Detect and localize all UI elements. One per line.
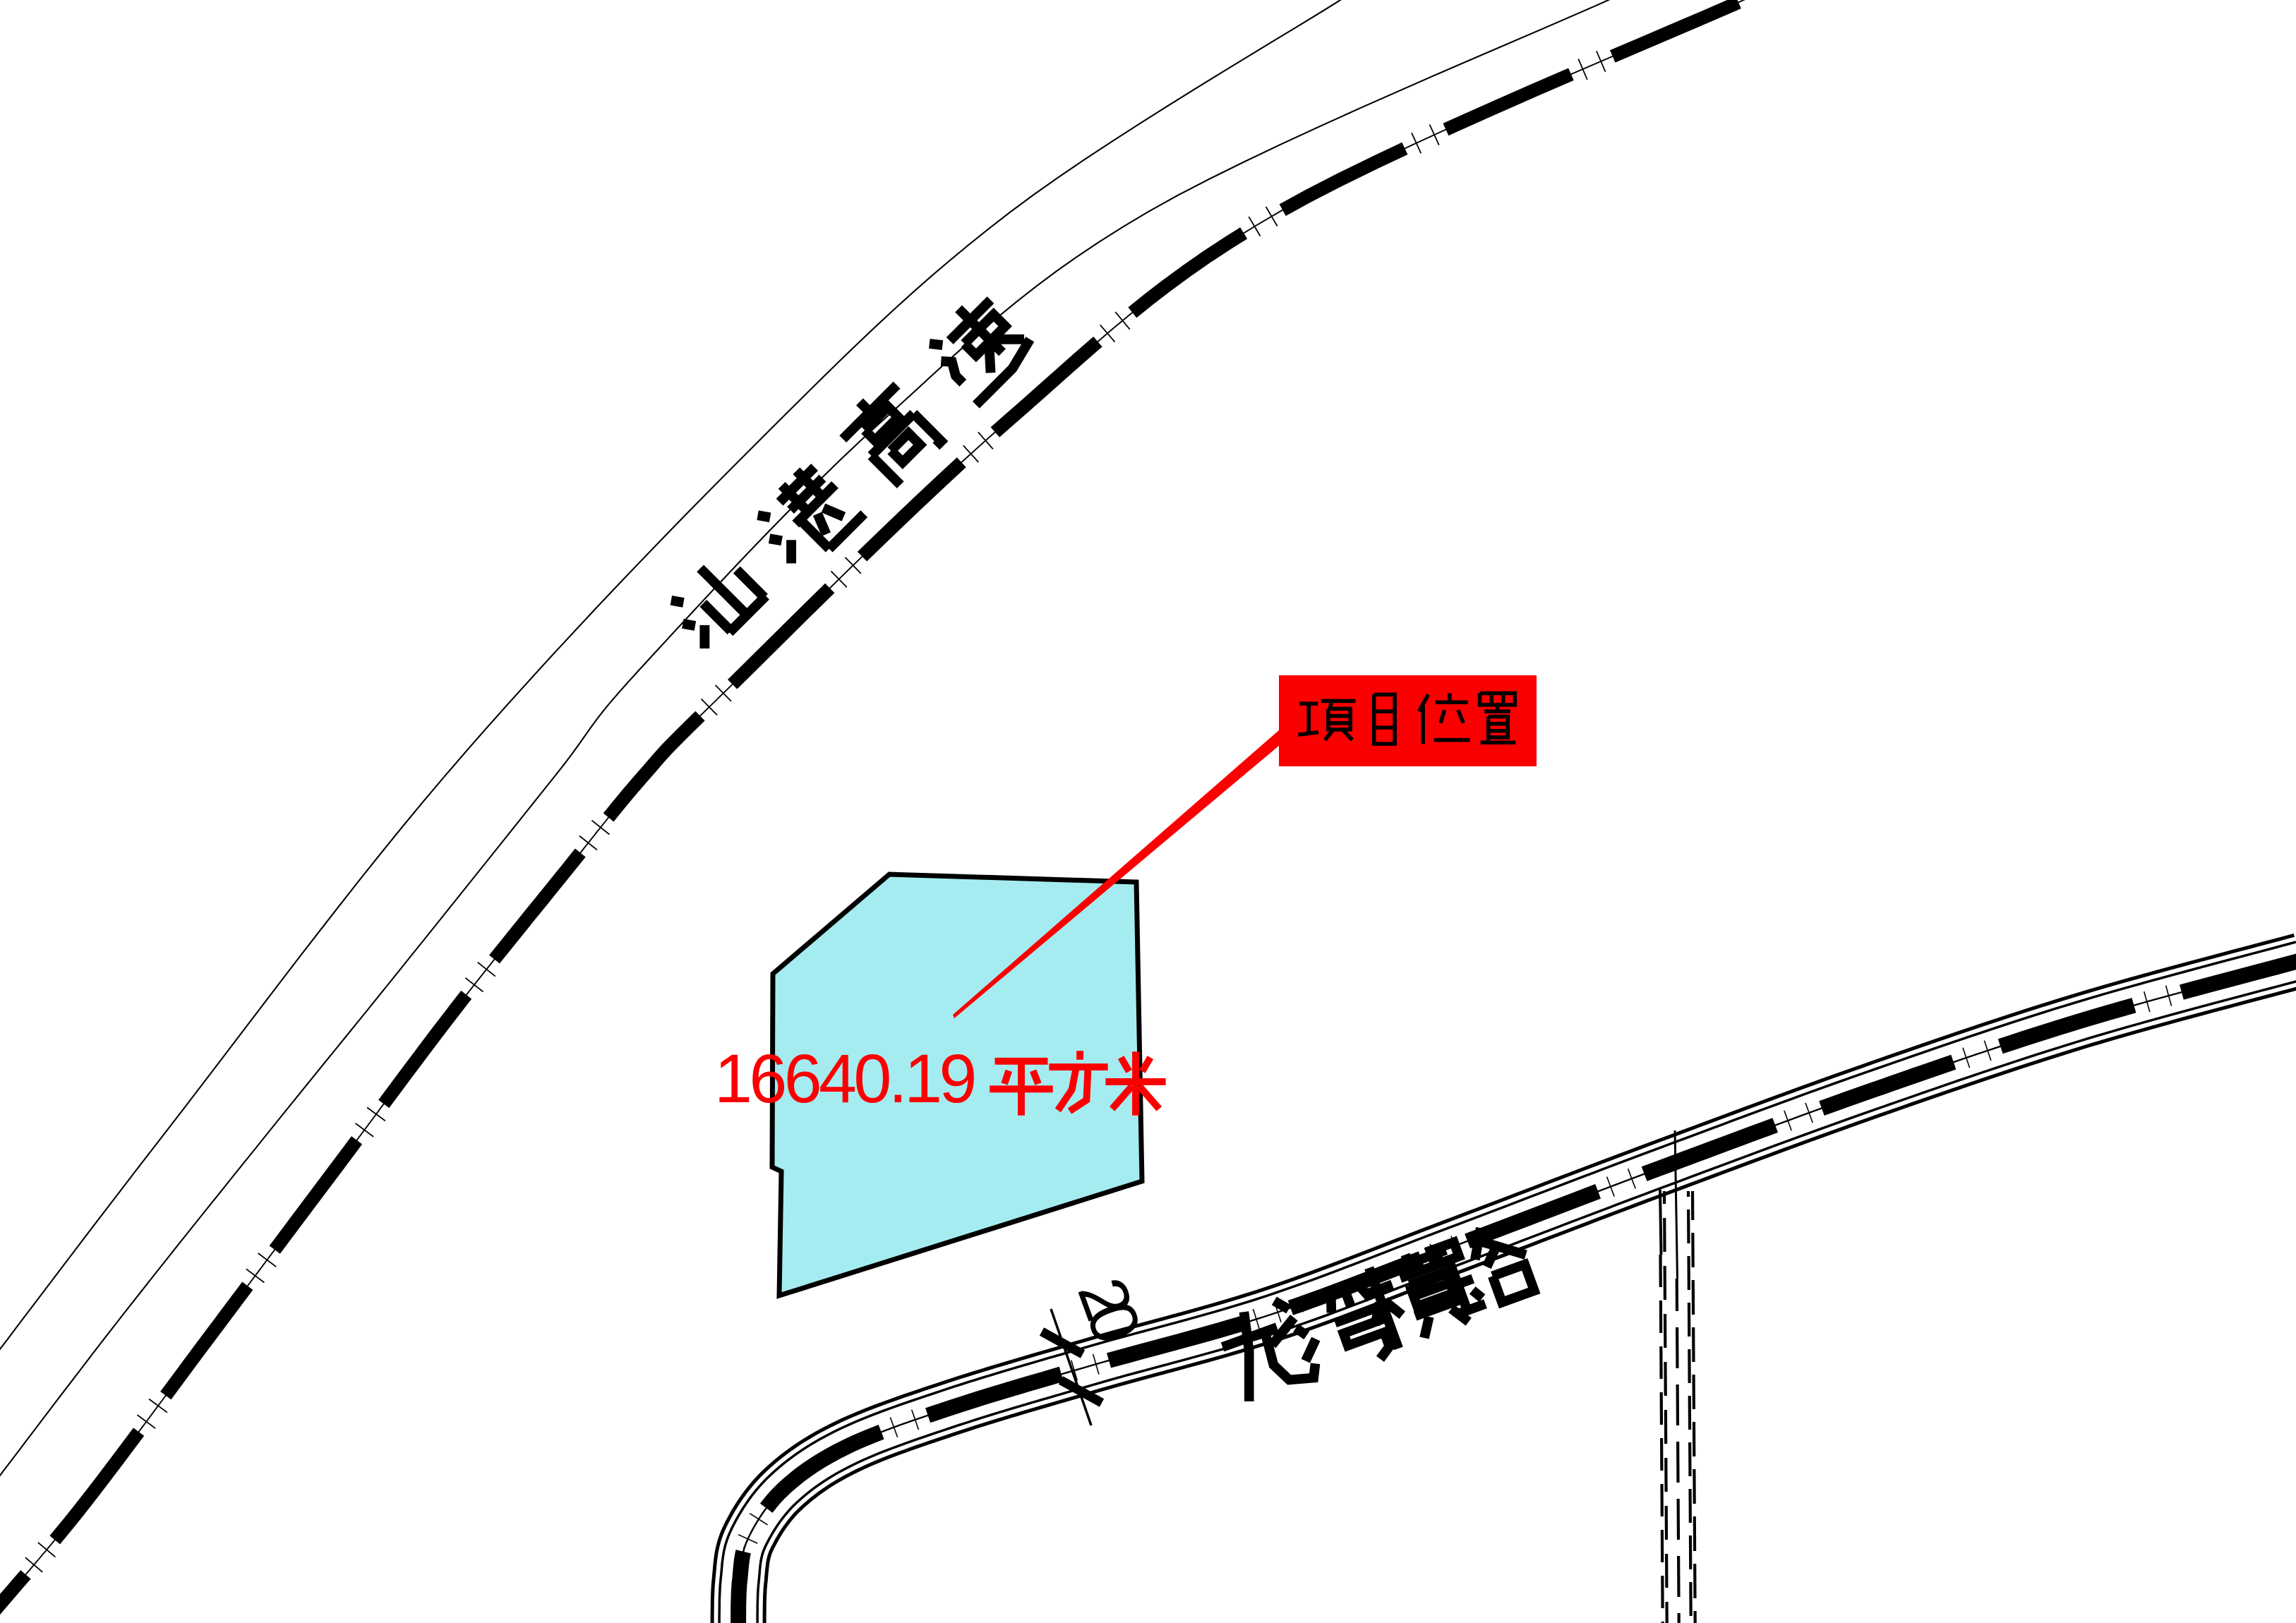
svg-text:16640.19: 16640.19 (714, 1040, 974, 1117)
